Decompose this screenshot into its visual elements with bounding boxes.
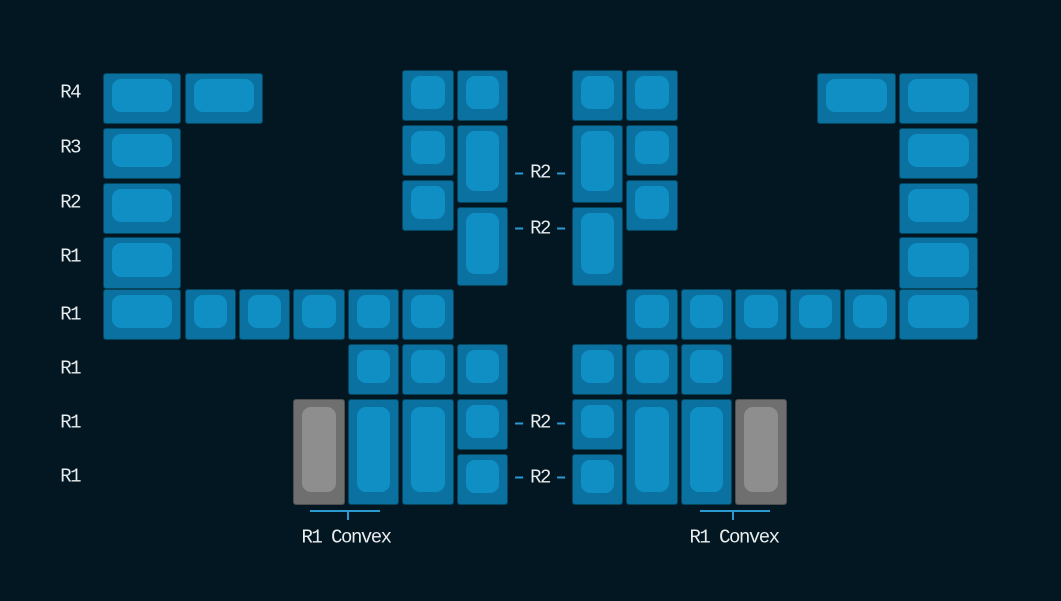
keycap-top-surface <box>908 189 969 222</box>
callout-text: R2 <box>530 219 550 238</box>
keycap-left-bottomrow-1.5u <box>103 289 182 340</box>
keycap-left-bottomrow-4 <box>348 289 399 340</box>
keycap-right-inner-r4-b <box>626 70 677 121</box>
keycap-top-surface <box>581 213 614 274</box>
keycap-top-surface <box>411 186 444 219</box>
keycap-right-inner-r2 <box>626 180 677 231</box>
keycap-right-thumb-top-1 <box>572 344 623 395</box>
keycap-left-inner-r4-b <box>457 70 508 121</box>
keycap-top-surface <box>466 76 499 109</box>
keycap-top-surface <box>357 350 390 383</box>
keycap-top-surface <box>908 243 969 276</box>
keycap-right-outer-r3-1.5u <box>899 128 978 179</box>
keycap-top-surface <box>581 131 614 192</box>
callout-dash-right <box>557 172 565 174</box>
keycap-left-outer-r3-1.5u <box>103 128 182 179</box>
keycap-top-surface <box>194 79 255 112</box>
keycap-top-surface <box>112 189 173 222</box>
keycap-left-thumb-2u-a <box>348 399 399 505</box>
keycap-left-outer-r2-1.5u <box>103 183 182 234</box>
convex-bracket-tick-1 <box>732 510 734 520</box>
row-label-r1-3: R1 <box>10 248 80 267</box>
convex-bracket-label-0: R1 Convex <box>301 529 390 548</box>
keycap-top-surface <box>466 405 499 438</box>
callout-dash-left <box>515 477 523 479</box>
keycap-top-surface <box>690 295 723 328</box>
keycap-right-bottomrow-1 <box>626 289 677 340</box>
callout-text: R2 <box>530 164 550 183</box>
keycap-left-bottomrow-2 <box>239 289 290 340</box>
keycap-left-bottomrow-3 <box>293 289 344 340</box>
callout-dash-left <box>515 172 523 174</box>
keycap-right-bottomrow-2 <box>681 289 732 340</box>
callout-text: R2 <box>530 468 550 487</box>
callout-dash-left <box>515 228 523 230</box>
keycap-top-surface <box>744 407 777 492</box>
keycap-top-surface <box>635 350 668 383</box>
keycap-right-thumb-top-3 <box>681 344 732 395</box>
callout-dash-right <box>557 422 565 424</box>
convex-bracket-label-1: R1 Convex <box>689 529 778 548</box>
keycap-left-outer-r1-1.5u <box>103 237 182 288</box>
keycap-top-surface <box>112 79 173 112</box>
keycap-left-inner-r3 <box>402 125 453 176</box>
row-label-r1-5: R1 <box>10 359 80 378</box>
keycap-top-surface <box>112 243 173 276</box>
keycap-right-inner-r4-a <box>572 70 623 121</box>
keycap-right-inner-tall-a <box>572 125 623 204</box>
convex-bracket-tick-0 <box>347 510 349 520</box>
keycap-top-surface <box>744 295 777 328</box>
profile-callout-r2-1: R2 <box>515 219 565 238</box>
keycap-top-surface <box>908 295 969 328</box>
keycap-top-surface <box>302 407 335 492</box>
keycap-right-bottomrow-4 <box>790 289 841 340</box>
keycap-right-thumb-top-2 <box>626 344 677 395</box>
keycap-top-surface <box>690 350 723 383</box>
keycap-left-thumb-top-2 <box>402 344 453 395</box>
keycap-right-inner-r3 <box>626 125 677 176</box>
keycap-top-surface <box>112 134 173 167</box>
keycap-top-surface <box>635 295 668 328</box>
keycap-left-inner-r2 <box>402 180 453 231</box>
callout-dash-right <box>557 228 565 230</box>
keycap-right-outer-r2-1.5u <box>899 183 978 234</box>
keycap-right-bottomrow-3 <box>735 289 786 340</box>
profile-callout-r2-2: R2 <box>515 414 565 433</box>
keycap-top-surface <box>635 186 668 219</box>
keycap-top-surface <box>357 407 390 492</box>
keycap-top-surface <box>357 295 390 328</box>
keycap-top-surface <box>581 76 614 109</box>
callout-dash-right <box>557 477 565 479</box>
keycap-top-surface <box>466 460 499 493</box>
keycap-left-thumb-top-3 <box>457 344 508 395</box>
keycap-right-bottomrow-5 <box>844 289 895 340</box>
keycap-top-surface <box>853 295 886 328</box>
keycap-top-surface <box>635 131 668 164</box>
keycap-top-surface <box>194 295 227 328</box>
keycap-top-surface <box>635 407 668 492</box>
keycap-top-surface <box>466 131 499 192</box>
keycap-left-outer-r4-1.5u <box>103 73 182 124</box>
keycap-top-surface <box>466 350 499 383</box>
keycap-top-surface <box>799 295 832 328</box>
keycap-right-outer-r4-1.5u <box>899 73 978 124</box>
keycap-top-surface <box>635 76 668 109</box>
profile-callout-r2-0: R2 <box>515 164 565 183</box>
keycap-layout-diagram: R4R3R2R1R1R1R1R1 R2R2R2R2 R1 ConvexR1 Co… <box>0 0 1061 601</box>
keycap-top-surface <box>908 79 969 112</box>
keycap-left-thumb-mid <box>457 399 508 450</box>
keycap-top-surface <box>112 295 173 328</box>
keycap-right-thumb-2u-gray <box>735 399 786 505</box>
row-label-r1-7: R1 <box>10 468 80 487</box>
keycap-top-surface <box>411 295 444 328</box>
keycap-top-surface <box>466 213 499 274</box>
keycap-left-inner-r4-a <box>402 70 453 121</box>
profile-callout-r2-3: R2 <box>515 468 565 487</box>
keycap-top-surface <box>248 295 281 328</box>
convex-bracket-line-0 <box>310 510 380 512</box>
keycap-top-surface <box>411 131 444 164</box>
keycap-left-thumb-2u-gray <box>293 399 344 505</box>
keycap-top-surface <box>411 76 444 109</box>
keycap-left-r4-1.5u <box>185 73 264 124</box>
keycap-right-thumb-2u-a <box>626 399 677 505</box>
callout-dash-left <box>515 422 523 424</box>
keycap-left-thumb-top-1 <box>348 344 399 395</box>
keycap-right-thumb-2u-b <box>681 399 732 505</box>
row-label-r1-6: R1 <box>10 414 80 433</box>
keycap-left-thumb-2u-b <box>402 399 453 505</box>
keycap-left-inner-tall-a <box>457 125 508 204</box>
keycap-left-thumb-low <box>457 454 508 505</box>
keycap-top-surface <box>411 350 444 383</box>
keycap-right-inner-tall-b <box>572 207 623 286</box>
keycap-right-thumb-mid <box>572 399 623 450</box>
keycap-top-surface <box>302 295 335 328</box>
row-label-r4-0: R4 <box>10 84 80 103</box>
convex-bracket-line-1 <box>700 510 770 512</box>
row-label-r2-2: R2 <box>10 193 80 212</box>
keycap-top-surface <box>908 134 969 167</box>
row-label-r1-4: R1 <box>10 305 80 324</box>
callout-text: R2 <box>530 414 550 433</box>
keycap-top-surface <box>581 460 614 493</box>
keycap-left-bottomrow-1 <box>185 289 236 340</box>
keycap-top-surface <box>581 350 614 383</box>
keycap-top-surface <box>411 407 444 492</box>
keycap-left-bottomrow-5 <box>402 289 453 340</box>
row-label-r3-1: R3 <box>10 138 80 157</box>
keycap-top-surface <box>690 407 723 492</box>
keycap-right-outer-r1-1.5u <box>899 237 978 288</box>
keycap-top-surface <box>826 79 887 112</box>
keycap-right-r4-1.5u <box>817 73 896 124</box>
keycap-top-surface <box>581 405 614 438</box>
keycap-left-inner-tall-b <box>457 207 508 286</box>
keycap-right-thumb-low <box>572 454 623 505</box>
keycap-right-bottomrow-1.5u <box>899 289 978 340</box>
